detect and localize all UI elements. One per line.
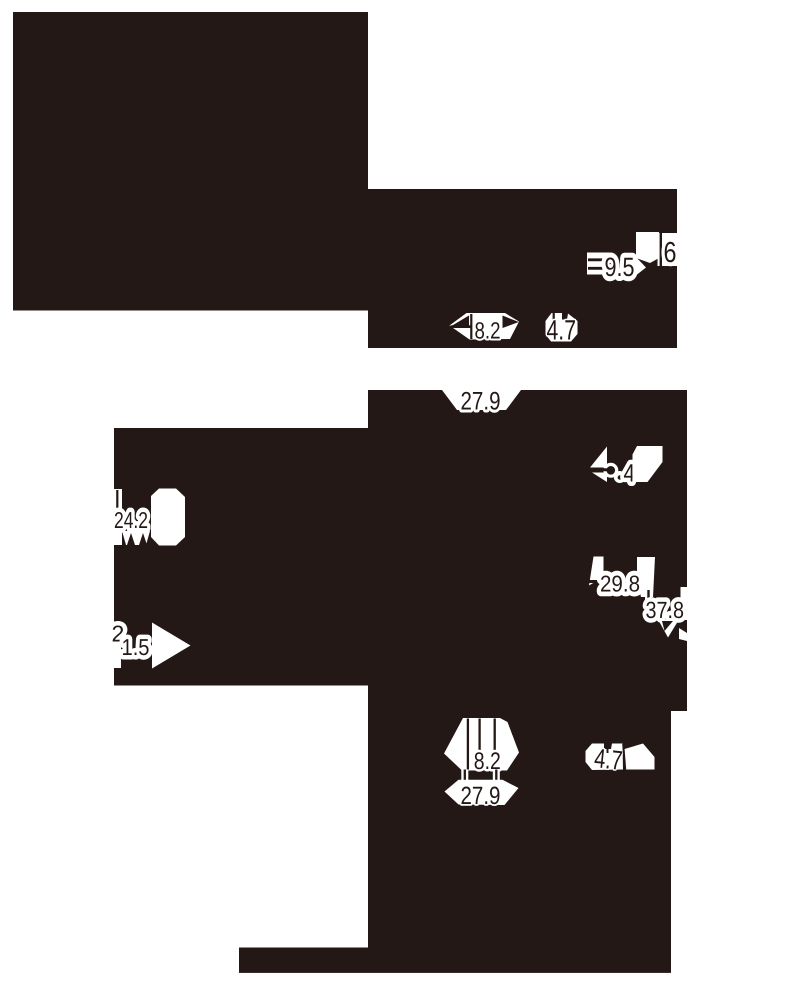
svg-text:6: 6 <box>664 237 677 269</box>
svg-text:29.8: 29.8 <box>600 571 640 597</box>
svg-text:4.7: 4.7 <box>547 315 577 346</box>
svg-text:27.9: 27.9 <box>461 388 501 416</box>
svg-text:4.7: 4.7 <box>593 743 624 776</box>
svg-text:37.8: 37.8 <box>646 597 685 623</box>
svg-text:8.2: 8.2 <box>475 318 501 344</box>
svg-text:27.9: 27.9 <box>461 782 501 810</box>
svg-text:24.2: 24.2 <box>114 507 148 533</box>
svg-text:9.5: 9.5 <box>605 252 635 282</box>
svg-text:1.5: 1.5 <box>122 634 150 660</box>
